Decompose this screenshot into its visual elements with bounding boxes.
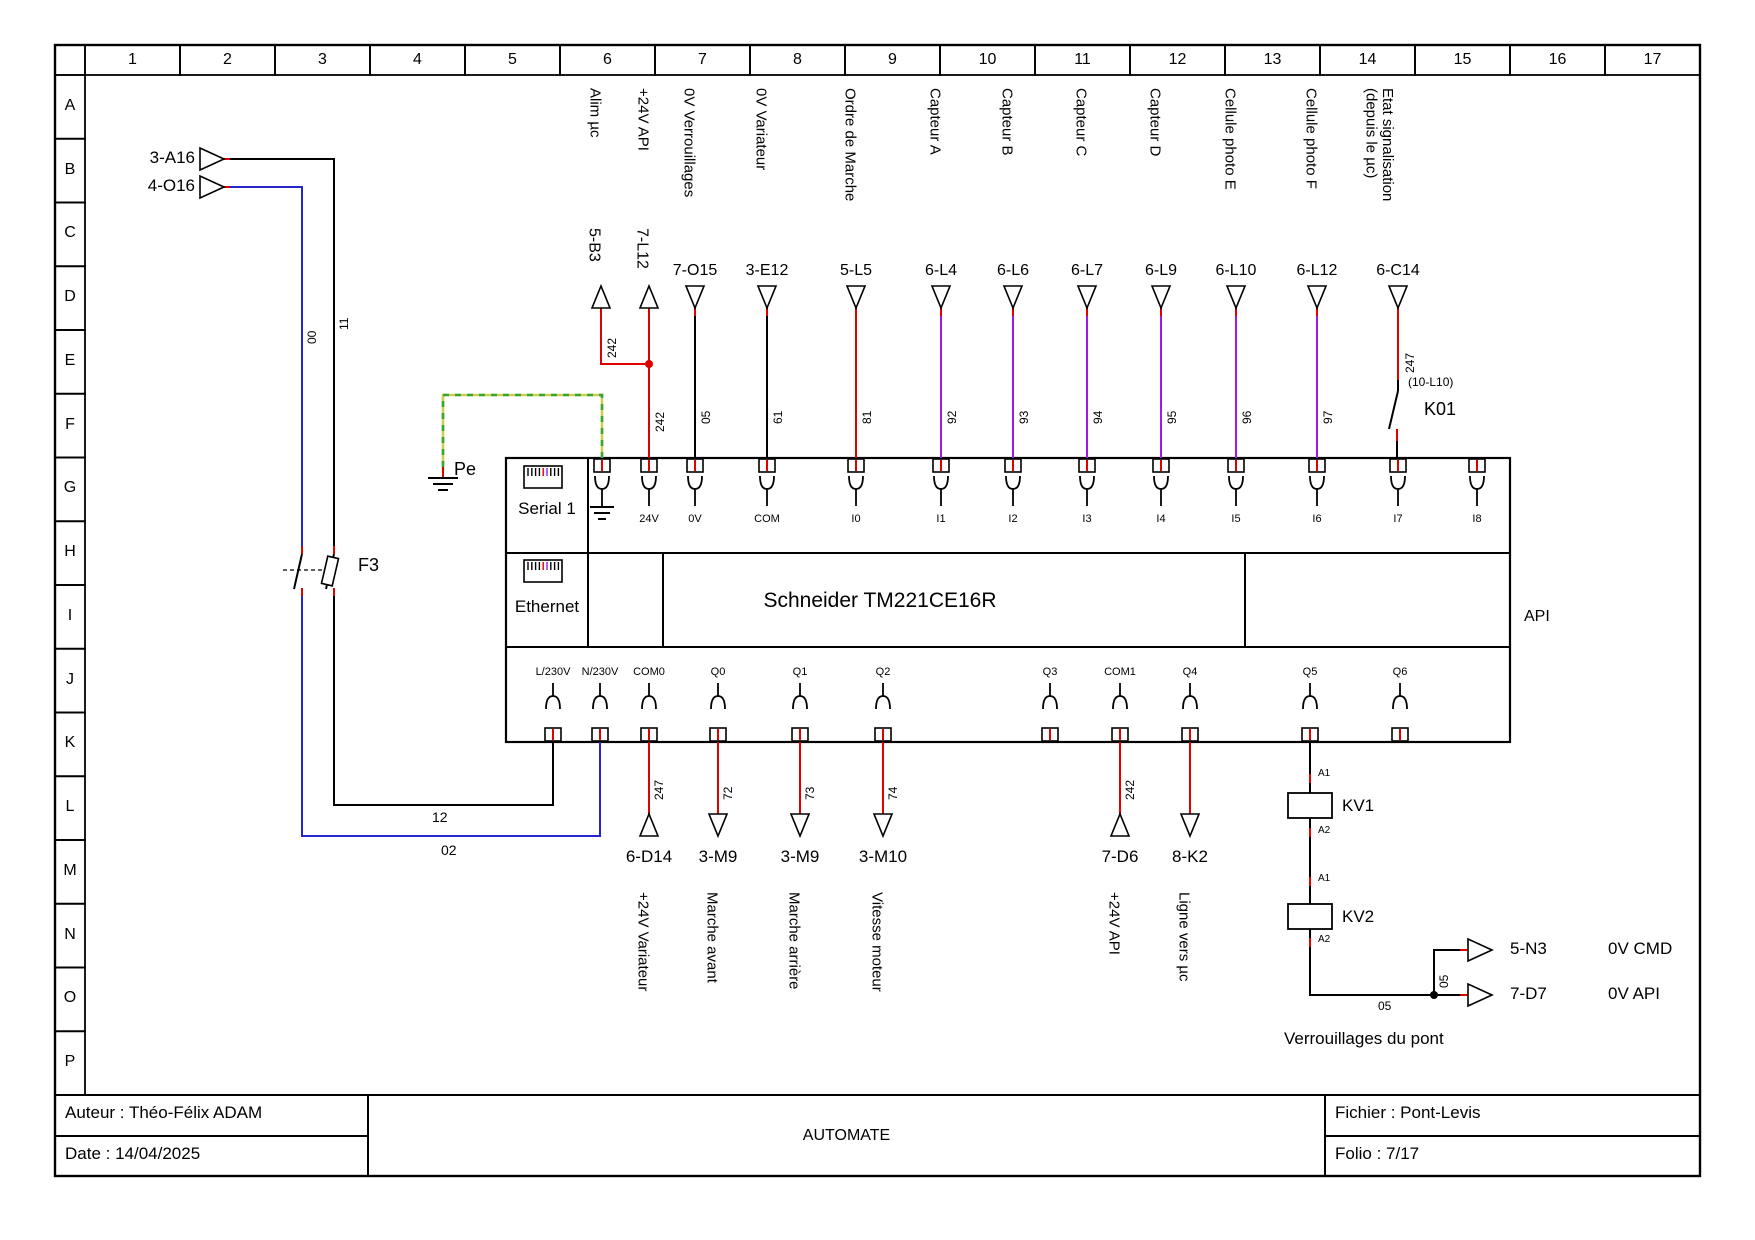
- grid-row-label: J: [55, 671, 85, 689]
- wire-number: 247: [1404, 353, 1417, 373]
- terminal-label: COM1: [1088, 666, 1152, 678]
- folio-arrow-down-icon: [1181, 814, 1199, 836]
- terminal-socket-icon: [642, 696, 656, 709]
- folio-arrow-down-icon: [758, 286, 776, 308]
- column-label: Etat signalisation (depuis le µc): [1362, 88, 1395, 201]
- titleblock-title: AUTOMATE: [368, 1127, 1325, 1145]
- terminal-socket-icon: [1229, 476, 1243, 489]
- terminal-label: I1: [911, 513, 971, 525]
- terminal-socket-icon: [849, 476, 863, 489]
- folio-arrow-down-icon: [1227, 286, 1245, 308]
- terminal-socket-icon: [1303, 696, 1317, 709]
- terminal-label: Q5: [1278, 666, 1342, 678]
- terminal-socket-icon: [1393, 696, 1407, 709]
- wiring-layer: [0, 0, 1755, 1240]
- wire-number: 72: [722, 787, 735, 800]
- wire-number: 81: [861, 411, 874, 424]
- terminal-label: Q1: [768, 666, 832, 678]
- wire-number: 94: [1092, 411, 1105, 424]
- grid-row-label: E: [55, 352, 85, 370]
- terminal-socket-icon: [1391, 476, 1405, 489]
- titleblock-folio: Folio : 7/17: [1335, 1145, 1419, 1164]
- wire-number: 96: [1241, 411, 1254, 424]
- column-label: +24V API: [634, 88, 651, 151]
- wire-number: 12: [432, 810, 448, 825]
- relay-label: KV2: [1342, 908, 1374, 927]
- folio-ref: 6-C14: [1353, 262, 1443, 280]
- folio-arrow-right-icon: [1468, 984, 1492, 1006]
- grid-column-label: 17: [1605, 51, 1700, 69]
- folio-ref: 3-A16: [125, 149, 195, 168]
- grid-column-label: 3: [275, 51, 370, 69]
- terminal-socket-icon: [1006, 476, 1020, 489]
- grid-row-label: P: [55, 1053, 85, 1071]
- pe-label: Pe: [454, 460, 476, 480]
- wire: [334, 596, 553, 805]
- folio-ref: 7-L12: [633, 228, 651, 269]
- signal-label: Ligne vers µc: [1175, 892, 1192, 982]
- plc-ethernet-label: Ethernet: [504, 598, 590, 617]
- folio-arrow-down-icon: [1389, 286, 1407, 308]
- relay-coil: [1288, 793, 1332, 818]
- relay-pin-label: A1: [1318, 873, 1330, 884]
- grid-column-label: 6: [560, 51, 655, 69]
- folio-arrow-down-icon: [1308, 286, 1326, 308]
- terminal-socket-icon: [1043, 696, 1057, 709]
- grid-row-label: K: [55, 734, 85, 752]
- terminal-socket-icon: [595, 476, 609, 489]
- wire-number: 74: [887, 787, 900, 800]
- terminal-socket-icon: [1080, 476, 1094, 489]
- signal-label: 0V API: [1608, 985, 1660, 1004]
- grid-row-label: F: [55, 416, 85, 434]
- plc-title: Schneider TM221CE16R: [680, 589, 1080, 612]
- folio-arrow-down-icon: [1152, 286, 1170, 308]
- terminal-label: Q6: [1368, 666, 1432, 678]
- terminal-socket-icon: [711, 696, 725, 709]
- grid-column-label: 12: [1130, 51, 1225, 69]
- wire: [230, 159, 334, 547]
- titleblock-file: Fichier : Pont-Levis: [1335, 1104, 1481, 1123]
- wire-number: 05: [700, 411, 713, 424]
- folio-arrow-down-icon: [709, 814, 727, 836]
- folio-arrow-down-icon: [847, 286, 865, 308]
- terminal-socket-icon: [593, 696, 607, 709]
- terminal-socket-icon: [546, 696, 560, 709]
- folio-arrow-up-icon: [640, 286, 658, 308]
- grid-row-label: C: [55, 224, 85, 242]
- terminal-label: 0V: [665, 513, 725, 525]
- relay-pin-label: A2: [1318, 934, 1330, 945]
- grid-column-label: 1: [85, 51, 180, 69]
- grid-row-label: A: [55, 97, 85, 115]
- terminal-label: Q4: [1158, 666, 1222, 678]
- plc-api-label: API: [1524, 608, 1550, 626]
- signal-label: Marche avant: [703, 892, 720, 983]
- wire: [294, 554, 302, 589]
- terminal-label: COM0: [617, 666, 681, 678]
- folio-arrow-up-icon: [1111, 814, 1129, 836]
- terminal-label: COM: [737, 513, 797, 525]
- column-label: Alim µc: [586, 88, 603, 137]
- wire-number: 97: [1322, 411, 1335, 424]
- signal-label: Marche arrière: [785, 892, 802, 990]
- grid-row-label: H: [55, 543, 85, 561]
- terminal-socket-icon: [1154, 476, 1168, 489]
- terminal-label: Q2: [851, 666, 915, 678]
- folio-ref: 6-L10: [1191, 262, 1281, 280]
- terminal-socket-icon: [642, 476, 656, 489]
- signal-label: Vitesse moteur: [868, 892, 885, 992]
- relay-pin-label: A1: [1318, 768, 1330, 779]
- group-caption: Verrouillages du pont: [1284, 1030, 1444, 1049]
- grid-column-label: 14: [1320, 51, 1415, 69]
- column-label: Capteur A: [926, 88, 943, 155]
- wire-number: 247: [653, 780, 666, 800]
- folio-ref: 7-D7: [1510, 985, 1547, 1004]
- folio-ref: 4-O16: [125, 177, 195, 196]
- wire: [1389, 391, 1398, 429]
- grid-row-label: L: [55, 798, 85, 816]
- wire-number: 05: [1378, 1000, 1391, 1013]
- folio-arrow-down-icon: [686, 286, 704, 308]
- wire: [230, 187, 302, 547]
- relay-label: KV1: [1342, 797, 1374, 816]
- folio-ref: 3-M10: [833, 848, 933, 867]
- wire-number: 02: [441, 843, 457, 858]
- wire: [302, 596, 600, 836]
- terminal-socket-icon: [1113, 696, 1127, 709]
- signal-label: 0V CMD: [1608, 940, 1672, 959]
- breaker-label: F3: [358, 556, 379, 576]
- terminal-socket-icon: [1470, 476, 1484, 489]
- grid-column-label: 11: [1035, 51, 1130, 69]
- folio-arrow-down-icon: [1078, 286, 1096, 308]
- titleblock-date: Date : 14/04/2025: [65, 1145, 200, 1164]
- terminal-socket-icon: [1183, 696, 1197, 709]
- folio-arrow-right-icon: [200, 176, 224, 198]
- column-label: 0V Variateur: [752, 88, 769, 170]
- junction-dot: [645, 360, 653, 368]
- grid-column-label: 16: [1510, 51, 1605, 69]
- wire-number: 11: [338, 318, 351, 330]
- folio-ref: 5-N3: [1510, 940, 1547, 959]
- junction-dot: [1430, 991, 1438, 999]
- column-label: Cellule photo F: [1302, 88, 1319, 189]
- grid-column-label: 10: [940, 51, 1035, 69]
- wire-number: 242: [1124, 780, 1137, 800]
- grid-column-label: 9: [845, 51, 940, 69]
- grid-row-label: B: [55, 161, 85, 179]
- grid-column-label: 15: [1415, 51, 1510, 69]
- terminal-label: I0: [826, 513, 886, 525]
- grid-column-label: 8: [750, 51, 845, 69]
- folio-ref: 8-K2: [1140, 848, 1240, 867]
- grid-row-label: O: [55, 989, 85, 1007]
- terminal-socket-icon: [688, 476, 702, 489]
- terminal-label: I6: [1287, 513, 1347, 525]
- wire-number: 61: [772, 411, 785, 424]
- signal-label: +24V API: [1105, 892, 1122, 955]
- contact-label: K01: [1424, 400, 1456, 420]
- wire-number: 05: [1438, 975, 1451, 988]
- grid-column-label: 5: [465, 51, 560, 69]
- column-label: Cellule photo E: [1221, 88, 1238, 190]
- grid-column-label: 13: [1225, 51, 1320, 69]
- plc-serial-label: Serial 1: [506, 500, 588, 519]
- folio-arrow-up-icon: [592, 286, 610, 308]
- wire-number: 93: [1018, 411, 1031, 424]
- terminal-socket-icon: [934, 476, 948, 489]
- terminal-label: I4: [1131, 513, 1191, 525]
- signal-label: +24V Variateur: [634, 892, 651, 991]
- column-label: 0V Verrouillages: [680, 88, 697, 197]
- terminal-label: I3: [1057, 513, 1117, 525]
- wire-number: 242: [606, 338, 619, 358]
- folio-arrow-right-icon: [200, 148, 224, 170]
- terminal-label: I2: [983, 513, 1043, 525]
- relay-coil: [1288, 904, 1332, 929]
- wire: [1310, 947, 1434, 995]
- grid-corner: [55, 45, 85, 75]
- breaker-fuse-icon: [321, 556, 338, 586]
- grid-column-label: 2: [180, 51, 275, 69]
- wire: [1434, 950, 1461, 995]
- terminal-socket-icon: [760, 476, 774, 489]
- folio-arrow-down-icon: [791, 814, 809, 836]
- column-label: Capteur C: [1072, 88, 1089, 156]
- wire-number: 95: [1166, 411, 1179, 424]
- folio-ref: 6-L12: [1272, 262, 1362, 280]
- k01-origin-note: (10-L10): [1408, 376, 1453, 389]
- wire-number: 00: [306, 331, 319, 344]
- folio-arrow-down-icon: [932, 286, 950, 308]
- grid-column-label: 7: [655, 51, 750, 69]
- folio-arrow-up-icon: [640, 814, 658, 836]
- grid-row-label: D: [55, 288, 85, 306]
- schematic-canvas: 3-A16 4-O16 00 11 12 02 F3 Pe 247 (10-L1…: [0, 0, 1755, 1240]
- terminal-socket-icon: [793, 696, 807, 709]
- column-label: Capteur B: [998, 88, 1015, 156]
- terminal-label: I5: [1206, 513, 1266, 525]
- folio-arrow-down-icon: [1004, 286, 1022, 308]
- grid-row-label: G: [55, 479, 85, 497]
- grid-row-label: N: [55, 926, 85, 944]
- titleblock-author: Auteur : Théo-Félix ADAM: [65, 1104, 262, 1123]
- folio-arrow-right-icon: [1468, 939, 1492, 961]
- wire-number: 242: [654, 412, 667, 432]
- grid-row-label: M: [55, 862, 85, 880]
- terminal-socket-icon: [1310, 476, 1324, 489]
- wire-number: 92: [946, 411, 959, 424]
- folio-ref: 3-E12: [722, 262, 812, 280]
- terminal-socket-icon: [876, 696, 890, 709]
- folio-ref: 5-L5: [811, 262, 901, 280]
- terminal-label: Q0: [686, 666, 750, 678]
- grid-row-label: I: [55, 607, 85, 625]
- terminal-label: I7: [1368, 513, 1428, 525]
- column-label: Ordre de Marche: [841, 88, 858, 201]
- wire-number: 73: [804, 787, 817, 800]
- terminal-label: Q3: [1018, 666, 1082, 678]
- column-label: Capteur D: [1146, 88, 1163, 156]
- terminal-label: I8: [1447, 513, 1507, 525]
- folio-ref: 5-B3: [585, 228, 603, 262]
- relay-pin-label: A2: [1318, 825, 1330, 836]
- grid-column-label: 4: [370, 51, 465, 69]
- folio-arrow-down-icon: [874, 814, 892, 836]
